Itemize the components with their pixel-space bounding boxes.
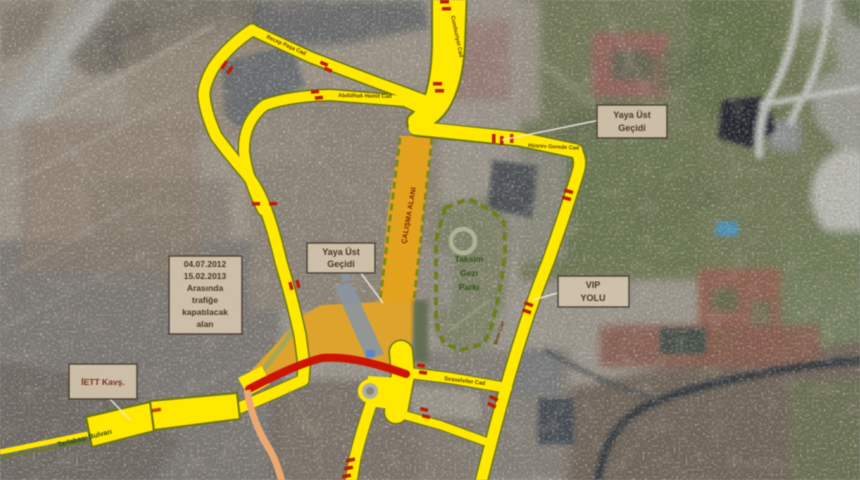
svg-text:Parkı: Parkı: [459, 282, 480, 292]
svg-text:Arasında: Arasında: [187, 283, 224, 293]
svg-text:Gezi: Gezi: [460, 268, 478, 278]
svg-text:kapatılacak: kapatılacak: [182, 307, 228, 317]
svg-text:Yaya Üst: Yaya Üst: [322, 247, 360, 257]
svg-text:trafiğe: trafiğe: [192, 295, 218, 305]
svg-text:15.02.2013: 15.02.2013: [184, 271, 227, 281]
svg-text:Geçidi: Geçidi: [618, 123, 646, 133]
svg-text:04.07.2012: 04.07.2012: [184, 259, 227, 269]
svg-text:alan: alan: [196, 319, 213, 329]
svg-text:Yaya Üst: Yaya Üst: [613, 110, 651, 120]
svg-text:Taksim: Taksim: [455, 254, 484, 264]
svg-text:Abdülhak Hamit Cad: Abdülhak Hamit Cad: [338, 93, 392, 100]
svg-text:VIP: VIP: [586, 280, 601, 290]
svg-text:Geçidi: Geçidi: [327, 259, 355, 269]
svg-text:İETT Kavş.: İETT Kavş.: [81, 377, 124, 387]
svg-text:YOLU: YOLU: [580, 293, 605, 303]
